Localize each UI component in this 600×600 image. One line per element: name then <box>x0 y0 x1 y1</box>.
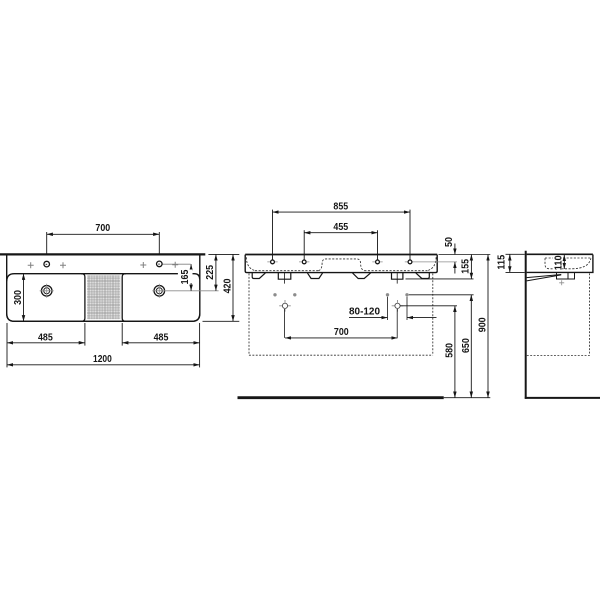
svg-text:855: 855 <box>333 200 348 212</box>
svg-text:700: 700 <box>95 222 110 234</box>
svg-text:650: 650 <box>460 338 472 353</box>
svg-text:455: 455 <box>333 221 348 233</box>
svg-text:165: 165 <box>179 269 191 284</box>
svg-text:300: 300 <box>12 290 24 305</box>
svg-text:580: 580 <box>443 343 455 358</box>
svg-text:485: 485 <box>154 331 169 343</box>
svg-text:110: 110 <box>553 255 565 270</box>
svg-text:50: 50 <box>443 237 455 247</box>
svg-text:1200: 1200 <box>93 353 112 365</box>
svg-text:485: 485 <box>38 331 53 343</box>
svg-text:115: 115 <box>496 255 508 270</box>
svg-text:225: 225 <box>204 265 216 280</box>
svg-text:700: 700 <box>334 326 349 338</box>
svg-text:900: 900 <box>476 317 488 332</box>
svg-text:155: 155 <box>460 259 472 274</box>
svg-text:80-120: 80-120 <box>349 306 380 318</box>
svg-text:420: 420 <box>221 278 233 293</box>
